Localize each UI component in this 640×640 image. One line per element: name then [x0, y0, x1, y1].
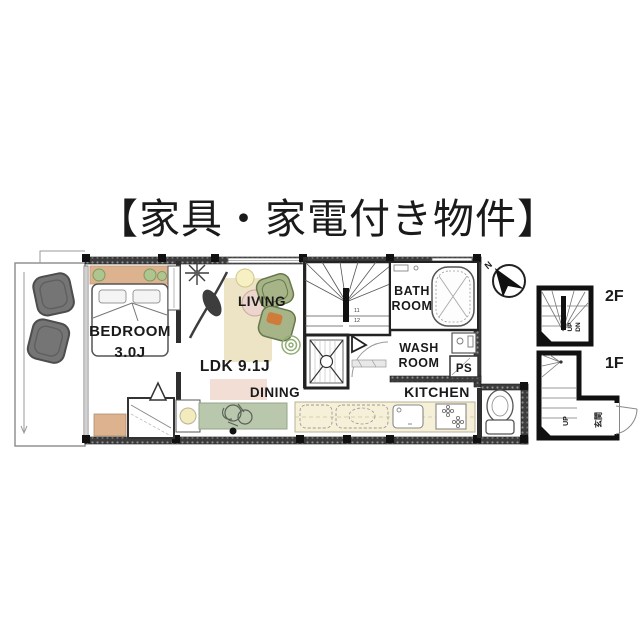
compass: N — [483, 259, 525, 297]
floor-plan-image: 【家具・家電付き物件】 — [0, 0, 640, 640]
plant-pot-icon — [93, 269, 105, 281]
dining-label: DINING — [250, 385, 300, 400]
stove — [436, 404, 466, 429]
bedroom-size-label: 3.0J — [114, 344, 145, 361]
washroom: WASH ROOM PS — [390, 330, 478, 377]
living-label: LIVING — [238, 294, 286, 309]
ldk-label: LDK 9.1J — [200, 358, 270, 375]
pillow — [99, 290, 126, 303]
inset2f-dn-label: DN — [575, 322, 582, 332]
closet — [128, 398, 174, 438]
dining-table — [199, 403, 287, 435]
shower-room — [305, 335, 348, 388]
round-stool — [176, 400, 200, 432]
window-balcony-door — [84, 266, 88, 436]
door-swing-mark — [150, 383, 166, 400]
toilet-room — [477, 388, 514, 438]
plant-pot-icon — [144, 269, 156, 281]
inset-2f: UP DN 2F — [539, 288, 624, 344]
toilet — [486, 390, 514, 434]
tall-plant-icon — [185, 261, 227, 338]
kitchen-label: KITCHEN — [404, 384, 470, 400]
stair-step-number: 11 — [354, 308, 360, 314]
inset1f-up-label: UP — [563, 416, 570, 426]
bathroom-label-1: BATH — [394, 284, 430, 298]
bedroom: BEDROOM 3.0J — [89, 261, 200, 438]
plant-pot-icon — [158, 272, 167, 281]
washroom-label-1: WASH — [399, 341, 439, 355]
balcony — [15, 251, 85, 446]
kitchen: KITCHEN — [295, 384, 475, 432]
pendant-light — [230, 428, 237, 435]
compass-north-label: N — [483, 259, 494, 271]
pillow — [133, 290, 160, 303]
bathtub — [432, 267, 474, 326]
washroom-label-2: ROOM — [399, 356, 440, 370]
stair-step-number: 12 — [354, 318, 360, 324]
side-table — [236, 269, 254, 287]
spiral-plant-icon — [282, 336, 300, 354]
hallway — [352, 336, 388, 377]
vanity — [452, 333, 476, 353]
ldk: LIVING LDK 9.1J DINING — [185, 261, 300, 435]
balcony-chair-1 — [31, 271, 75, 317]
inset-1f: UP 玄関 1F — [539, 353, 637, 438]
bedroom-label: BEDROOM — [89, 323, 171, 340]
kitchen-sink — [393, 405, 423, 428]
pipe-space: PS — [450, 356, 478, 377]
inset1f-entrance-label: 玄関 — [593, 412, 603, 428]
door-swing-mark — [352, 336, 366, 352]
inset1f-label: 1F — [605, 355, 624, 372]
page-title: 【家具・家電付き物件】 — [97, 196, 559, 242]
bench — [94, 414, 126, 436]
floor-plan-svg: 【家具・家電付き物件】 — [0, 0, 640, 640]
bathroom-label-2: ROOM — [392, 299, 433, 313]
window-top — [228, 258, 300, 263]
door-sill — [352, 360, 386, 367]
door-opening — [612, 403, 619, 434]
inset2f-label: 2F — [605, 288, 624, 305]
ps-label: PS — [456, 363, 472, 375]
bathroom: BATH ROOM — [390, 262, 478, 330]
inset2f-up-label: UP — [567, 322, 574, 332]
